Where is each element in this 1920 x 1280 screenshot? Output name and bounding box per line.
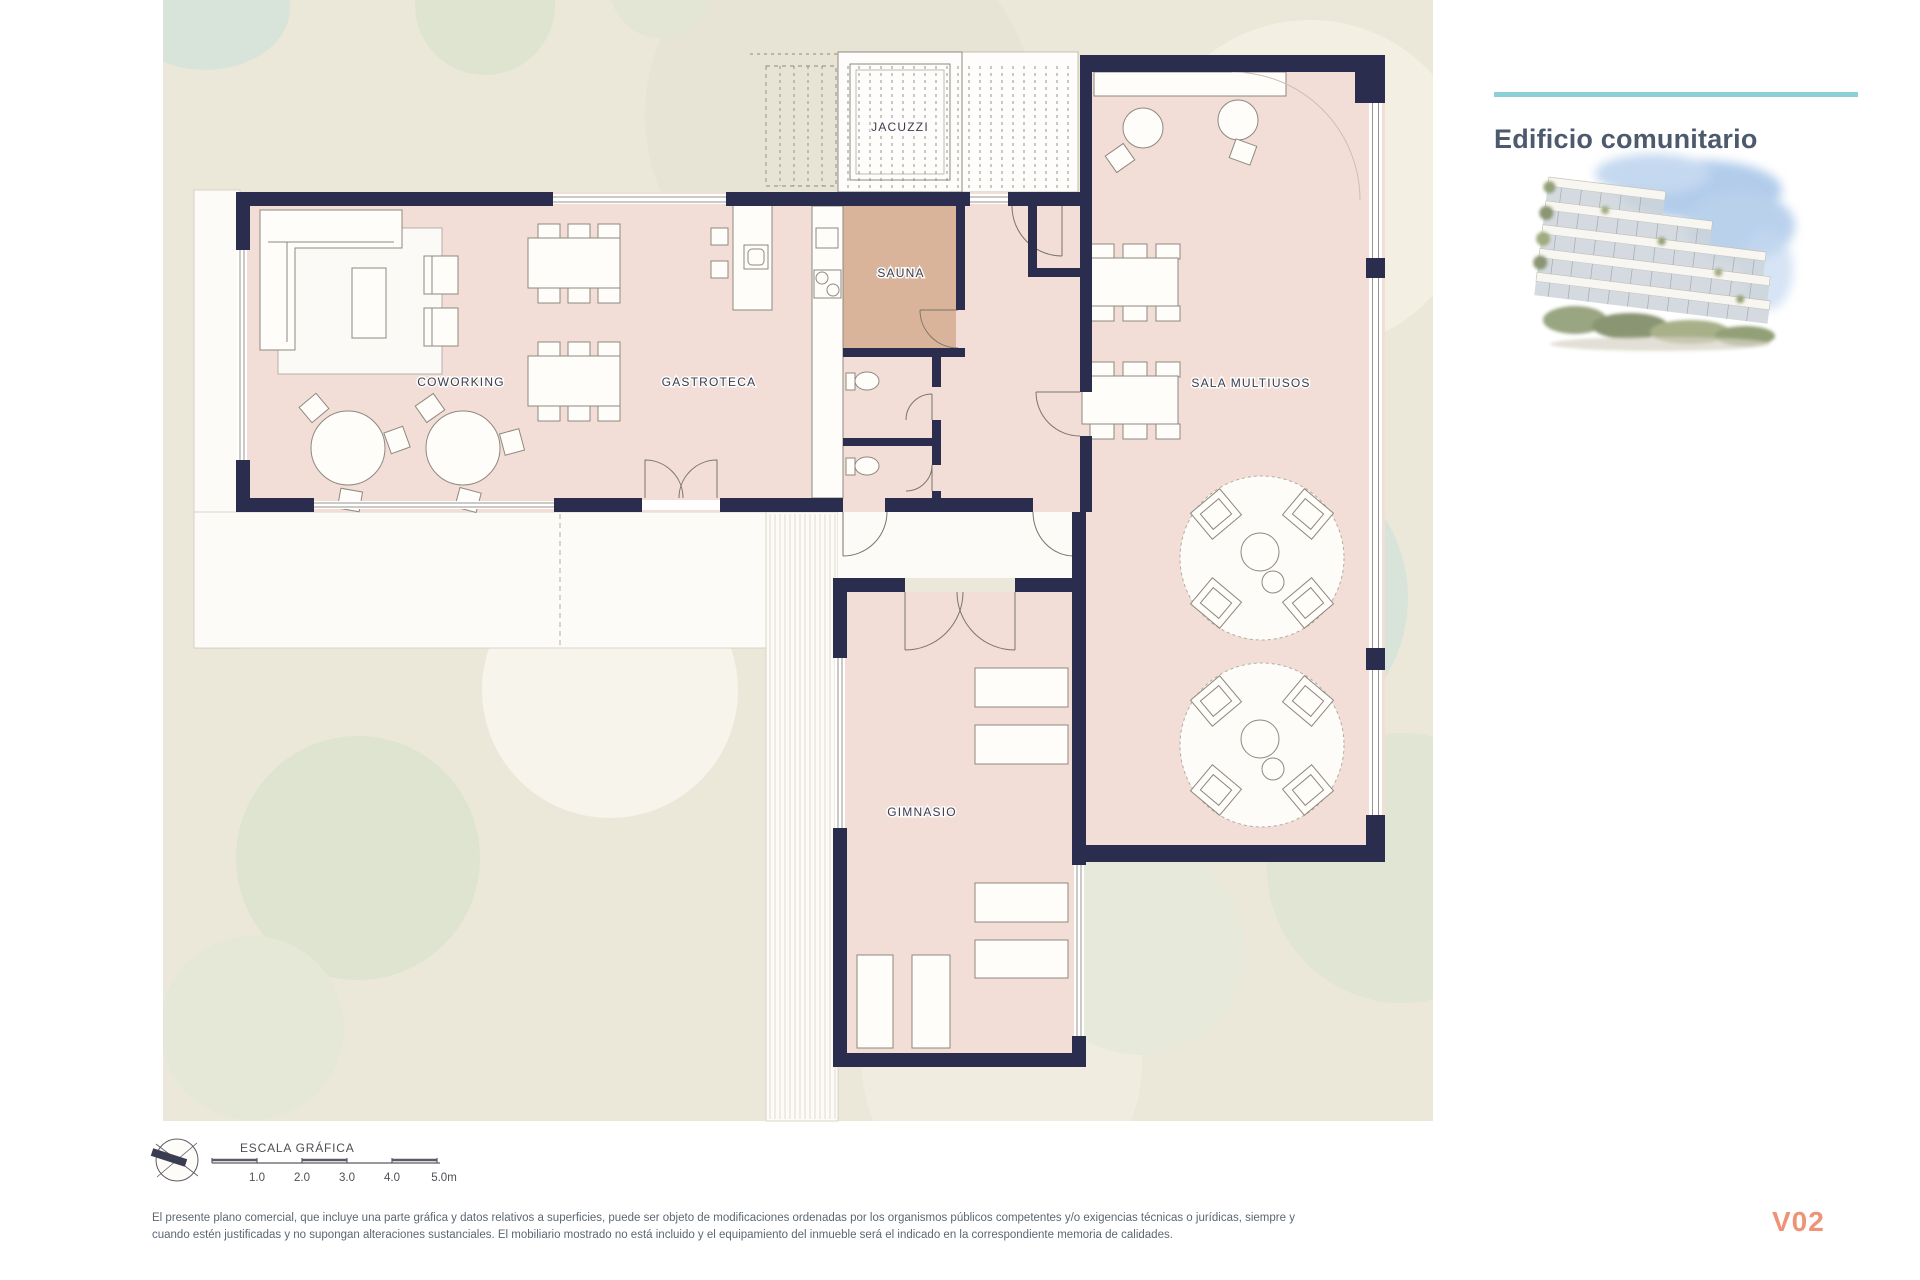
toilet [846, 372, 879, 390]
treadmill [912, 955, 950, 1048]
table-six-seats [1082, 362, 1180, 439]
treadmill [857, 955, 893, 1048]
toilet [846, 457, 879, 475]
armchair [424, 256, 458, 294]
scale-tick: 2.0 [294, 1172, 310, 1184]
scale-tick: 5.0m [431, 1172, 457, 1184]
scale-tick: 1.0 [249, 1172, 265, 1184]
table-six-seats [528, 342, 620, 421]
round-lounge-area [1180, 476, 1344, 640]
label-sala-multiusos: SALA MULTIUSOS [1191, 376, 1310, 390]
sideboard [1094, 72, 1286, 96]
coffee-table [352, 268, 386, 338]
scale-tick: 4.0 [384, 1172, 400, 1184]
label-jacuzzi: JACUZZI [871, 120, 929, 134]
kitchen-counter [812, 206, 843, 498]
label-coworking: COWORKING [417, 375, 504, 389]
north-arrow-icon [152, 1139, 198, 1181]
floor-plan-drawing: JACUZZI SAUNA COWORKING GASTROTECA SALA … [0, 0, 1920, 1280]
table-six-seats [528, 224, 620, 303]
disclaimer-line-2: cuando estén justificadas y no supongan … [152, 1227, 1442, 1244]
version-label: V02 [1772, 1206, 1825, 1238]
page-title: Edificio comunitario [1494, 124, 1758, 155]
label-sauna: SAUNA [877, 266, 924, 280]
label-gimnasio: GIMNASIO [887, 805, 957, 819]
round-lounge-area [1180, 663, 1344, 827]
table-six-seats [1082, 244, 1180, 321]
scale-tick: 3.0 [339, 1172, 355, 1184]
building-watercolor-illustration [1529, 154, 1795, 351]
disclaimer-line-1: El presente plano comercial, que incluye… [152, 1210, 1442, 1227]
title-accent-line [1494, 92, 1858, 97]
armchair [424, 308, 458, 346]
scale-title: ESCALA GRÁFICA [240, 1140, 355, 1155]
plan-sheet: JACUZZI SAUNA COWORKING GASTROTECA SALA … [0, 0, 1920, 1280]
label-gastroteca: GASTROTECA [662, 375, 757, 389]
scale-bar: ESCALA GRÁFICA 1.0 2.0 3.0 4.0 5.0m [152, 1139, 457, 1184]
disclaimer: El presente plano comercial, que incluye… [152, 1210, 1442, 1245]
